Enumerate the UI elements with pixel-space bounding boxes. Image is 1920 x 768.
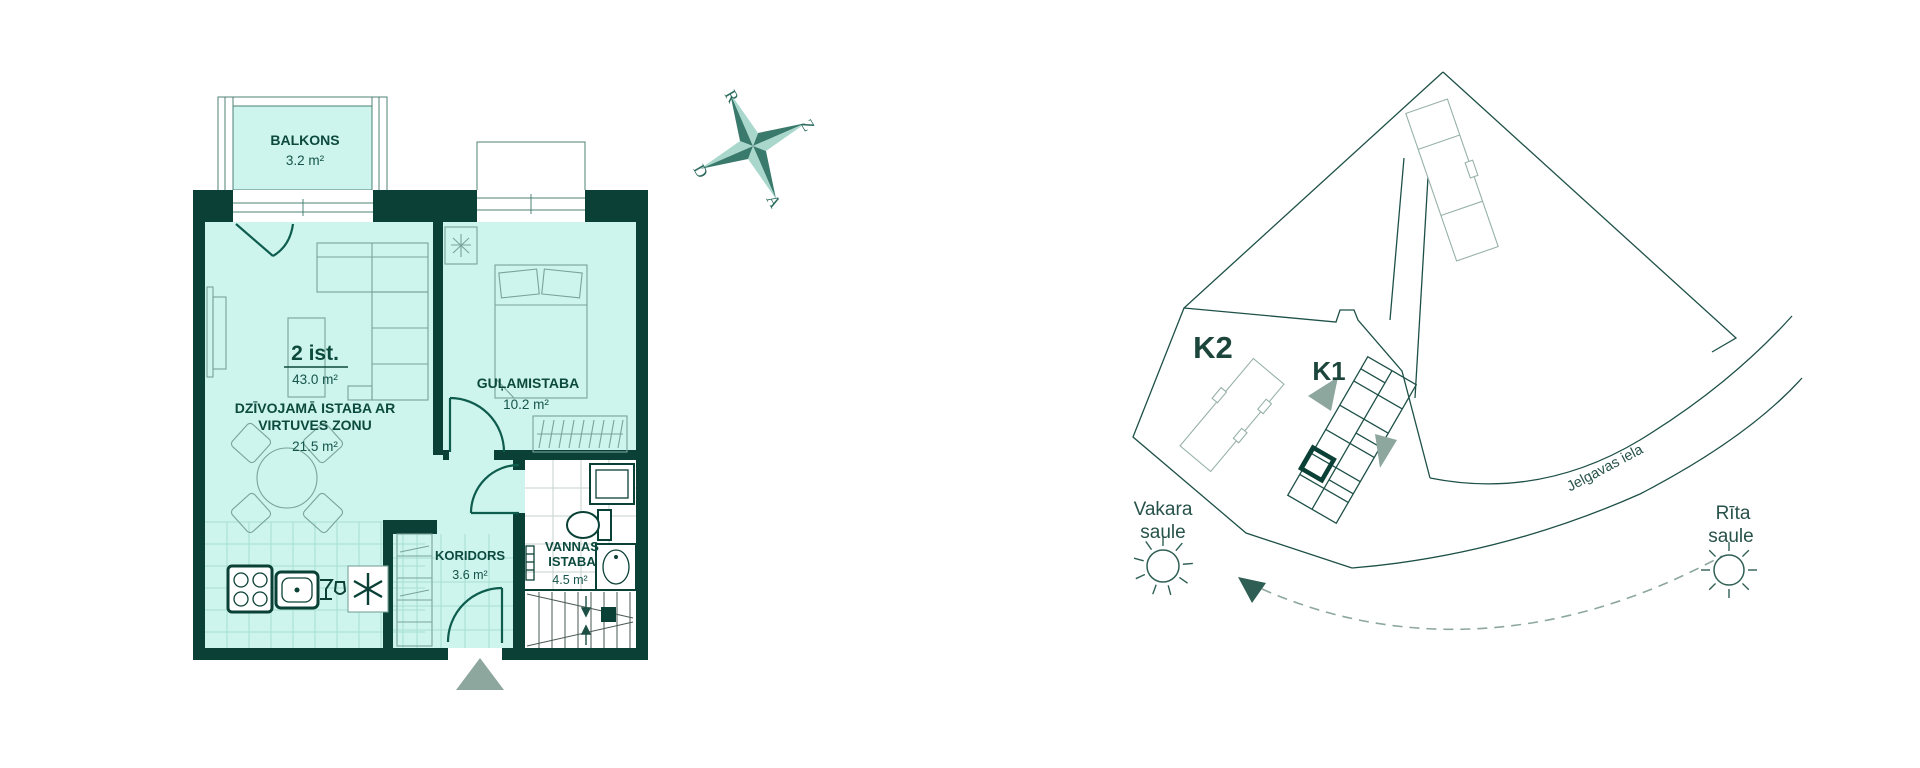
apartment-type-label: 2 ist. xyxy=(291,342,339,365)
evening-sun-label-line1: Vakara xyxy=(1134,499,1193,520)
toilet xyxy=(567,510,611,540)
sun-path-arrowhead xyxy=(1238,577,1266,603)
compass-letter-south: D xyxy=(689,161,712,181)
shower-cabinet xyxy=(590,464,634,504)
compass-letter-east: A xyxy=(762,191,785,212)
compass-rose: R Z D A xyxy=(689,87,818,212)
sun-path-arc xyxy=(1262,556,1722,629)
balcony-label: BALKONS xyxy=(270,132,339,148)
entrance-arrow-icon xyxy=(456,658,504,690)
living-room-area: 21.5 m² xyxy=(292,439,338,454)
morning-sun-icon xyxy=(1701,542,1757,598)
apartment-area-label: 43.0 m² xyxy=(292,372,338,387)
bathtub xyxy=(596,544,636,590)
parcel-boundary-right xyxy=(1443,72,1736,352)
compass-letter-west: R xyxy=(721,87,743,107)
sink-icon xyxy=(276,572,318,608)
building-k2-label: K2 xyxy=(1193,330,1233,365)
bedroom-area: 10.2 m² xyxy=(503,397,549,412)
building-outline-north xyxy=(1406,98,1502,261)
floorplan-page: BALKONS 3.2 m² 2 ist. 43.0 m² DZĪVOJAMĀ … xyxy=(0,0,1920,768)
apartment-floorplan: BALKONS 3.2 m² 2 ist. 43.0 m² DZĪVOJAMĀ … xyxy=(193,97,648,690)
street-label: Jelgavas iela xyxy=(1564,441,1646,495)
compass-letter-north: Z xyxy=(797,116,819,134)
bathroom-label-line1: VANNAS xyxy=(545,539,599,554)
building-k1-label: K1 xyxy=(1312,356,1345,386)
entrance-triangle-k1-lower xyxy=(1375,434,1397,468)
balcony-area: 3.2 m² xyxy=(286,153,325,168)
living-room-label-line2: VIRTUVES ZONU xyxy=(258,417,372,433)
compass-star-icon xyxy=(700,93,806,199)
corridor-area: 3.6 m² xyxy=(452,568,487,582)
evening-sun-label-line2: saule xyxy=(1140,522,1185,543)
corridor-label: KORIDORS xyxy=(435,548,505,563)
driveway-edge-right xyxy=(1415,160,1429,398)
stair-landing-mark xyxy=(601,607,616,622)
living-room-label-line1: DZĪVOJAMĀ ISTABA AR xyxy=(235,400,395,416)
floorplan-drawing: BALKONS 3.2 m² 2 ist. 43.0 m² DZĪVOJAMĀ … xyxy=(0,0,1920,768)
driveway-edge-left xyxy=(1390,158,1404,320)
site-plan: K2 K1 Vakara saule xyxy=(1133,72,1802,629)
bathroom-label-line2: ISTABA xyxy=(548,554,596,569)
morning-sun-label-line1: Rīta xyxy=(1716,503,1751,524)
fridge-icon xyxy=(348,566,388,612)
evening-sun-icon xyxy=(1134,536,1193,595)
bedroom-label: GUĻAMISTABA xyxy=(477,375,579,391)
highlighted-apartment-marker xyxy=(1301,448,1334,481)
morning-sun-label-line2: saule xyxy=(1708,526,1753,547)
bathroom-area: 4.5 m² xyxy=(552,573,587,587)
building-k1-outline xyxy=(1286,356,1416,524)
kitchen-appliances xyxy=(228,566,388,612)
building-k2-outline xyxy=(1175,355,1286,474)
stove-icon xyxy=(228,566,272,612)
